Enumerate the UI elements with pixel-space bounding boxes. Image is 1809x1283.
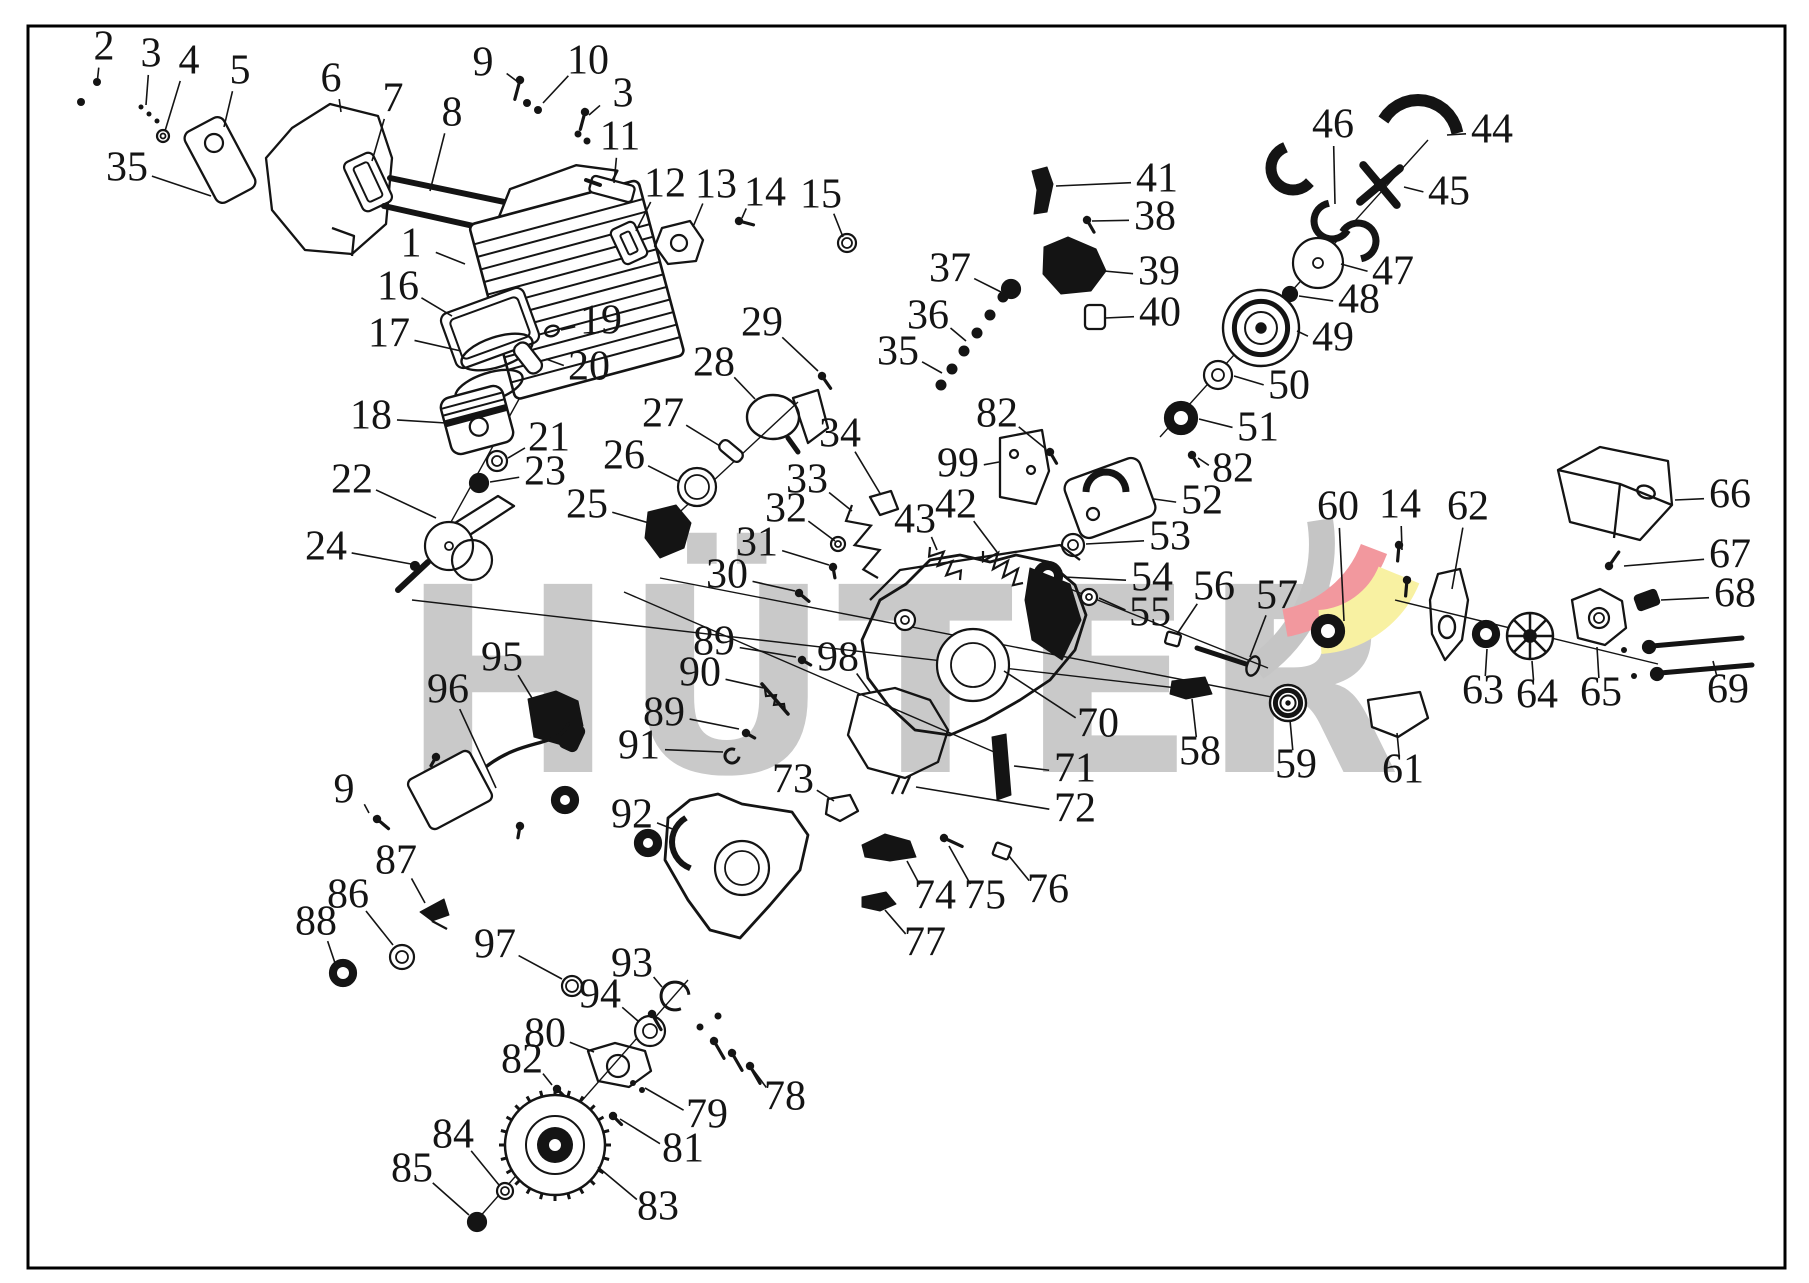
leader-line: [421, 298, 452, 316]
leader-line: [433, 1183, 469, 1215]
callout-87: 87: [375, 838, 425, 903]
part-number-label: 49: [1312, 315, 1354, 361]
callout-99: 99: [937, 441, 999, 487]
drum-glyph: [1270, 685, 1306, 721]
part-number-label: 83: [637, 1184, 679, 1230]
leader-line: [620, 1119, 660, 1144]
part-number-label: 46: [1312, 102, 1354, 148]
outline-glyph: [1558, 470, 1672, 505]
leader-line: [372, 119, 384, 161]
callout-50: 50: [1234, 363, 1310, 409]
part-number-label: 96: [427, 667, 469, 713]
part-number-label: 28: [693, 340, 735, 386]
part-number-label: 27: [642, 391, 684, 437]
part-number-label: 75: [964, 873, 1006, 919]
screw-glyph: [607, 1110, 624, 1127]
callout-16: 16: [377, 264, 452, 316]
leader-line: [165, 81, 180, 131]
part-number-label: 51: [1237, 405, 1279, 451]
callout-46: 46: [1312, 102, 1354, 204]
part-number-label: 16: [377, 264, 419, 310]
part-number-label: 34: [819, 411, 861, 457]
solid-part-glyph: [1032, 167, 1053, 214]
part-number-label: 14: [1379, 482, 1421, 528]
leader-line: [1661, 598, 1709, 600]
callout-83: 83: [598, 1167, 679, 1230]
callout-28: 28: [693, 340, 755, 399]
callout-14: 14: [742, 170, 786, 218]
diagram-page: HÜTER 2345678910311351213141511617192018…: [0, 0, 1809, 1283]
part-number-label: 53: [1149, 514, 1191, 560]
part-number-label: 42: [935, 482, 977, 528]
ring-glyph: [1651, 668, 1663, 680]
ring-glyph: [1293, 238, 1343, 288]
part-number-label: 65: [1580, 670, 1622, 716]
leader-line: [1452, 528, 1463, 589]
callout-63: 63: [1462, 649, 1504, 714]
solid-part-glyph: [1043, 237, 1106, 294]
part-number-label: 25: [566, 482, 608, 528]
part-number-label: 30: [706, 552, 748, 598]
callout-1: 1: [401, 221, 466, 267]
leader-line: [1404, 187, 1423, 192]
c-clip-glyph: [661, 982, 689, 1010]
leader-line: [885, 910, 906, 934]
ring-glyph: [497, 1183, 513, 1199]
solid-part-glyph: [862, 892, 896, 911]
ring-glyph: [838, 234, 856, 252]
screw-glyph: [726, 1047, 745, 1072]
leader-line: [1334, 146, 1335, 204]
part-number-label: 22: [331, 457, 373, 503]
leader-line: [922, 362, 942, 373]
ring-glyph: [715, 841, 769, 895]
outline-glyph: [1000, 430, 1049, 504]
small-parts-glyph: [139, 105, 160, 124]
part-number-label: 14: [744, 170, 786, 216]
callout-82: 82: [976, 391, 1046, 449]
callout-81: 81: [620, 1119, 704, 1172]
part-number-label: 88: [295, 899, 337, 945]
screw-glyph: [708, 1035, 727, 1060]
part-number-label: 50: [1268, 363, 1310, 409]
leader-line: [1092, 220, 1129, 221]
ring-glyph: [425, 522, 473, 570]
leader-line: [598, 1167, 637, 1200]
screw-glyph: [1603, 550, 1622, 572]
part-number-label: 40: [1139, 290, 1181, 336]
screw-glyph: [816, 370, 834, 391]
ring-glyph: [671, 235, 687, 251]
arc-shoe-glyph: [1314, 203, 1348, 239]
part-number-label: 26: [603, 433, 645, 479]
small-parts-glyph: [697, 1013, 722, 1031]
callout-39: 39: [1104, 249, 1180, 295]
leader-line: [612, 512, 649, 523]
part-number-label: 8: [442, 90, 463, 136]
callout-78: 78: [751, 1067, 806, 1120]
ring-glyph: [1027, 466, 1035, 474]
part-number-label: 73: [772, 757, 814, 803]
screw-glyph: [371, 813, 391, 832]
ring-glyph: [1643, 641, 1655, 653]
piston-glyph: [439, 384, 516, 457]
callout-8: 8: [430, 90, 463, 191]
callout-25: 25: [566, 482, 649, 528]
part-number-label: 60: [1317, 484, 1359, 530]
ring-glyph: [895, 610, 915, 630]
part-number-label: 61: [1382, 747, 1424, 793]
part-number-label: 84: [432, 1112, 474, 1158]
callout-15: 15: [800, 172, 843, 237]
small-parts-glyph: [523, 99, 542, 114]
ring-glyph: [1062, 534, 1084, 556]
part-number-label: 63: [1462, 668, 1504, 714]
leader-line: [152, 176, 211, 196]
part-number-label: 44: [1471, 107, 1513, 153]
part-number-label: 37: [929, 246, 971, 292]
arc-shoe-glyph: [1342, 223, 1376, 259]
solid-part-glyph: [1170, 677, 1212, 699]
callout-9: 9: [473, 40, 519, 86]
callout-29: 29: [741, 300, 818, 371]
flywheel-glyph: [499, 1089, 611, 1201]
callout-84: 84: [432, 1112, 499, 1185]
leader-line: [508, 448, 525, 458]
part-number-label: 18: [350, 393, 392, 439]
callout-38: 38: [1092, 194, 1176, 240]
leader-line: [146, 75, 148, 105]
box-glyph: [717, 438, 745, 464]
box-glyph: [182, 114, 258, 205]
arc-shoe-glyph: [1271, 147, 1310, 190]
leader-line: [1299, 296, 1333, 301]
part-number-label: 77: [904, 920, 946, 966]
part-number-label: 45: [1428, 169, 1470, 215]
part-number-label: 13: [695, 162, 737, 208]
callout-2: 2: [94, 24, 115, 84]
callout-24: 24: [305, 524, 411, 570]
callout-13: 13: [693, 162, 737, 227]
leader-line: [366, 911, 393, 945]
callout-49: 49: [1297, 315, 1354, 361]
leader-line: [224, 91, 232, 127]
callout-74: 74: [907, 861, 956, 919]
part-number-label: 76: [1027, 867, 1069, 913]
part-number-label: 87: [375, 838, 417, 884]
leader-line: [782, 337, 818, 371]
part-number-label: 10: [567, 38, 609, 84]
impeller-glyph: [1507, 613, 1553, 659]
ring-glyph: [1473, 621, 1499, 647]
part-number-label: 3: [141, 31, 162, 77]
leader-line: [1341, 264, 1368, 271]
rod-glyph: [788, 438, 798, 452]
part-number-label: 35: [106, 145, 148, 191]
callout-10: 10: [543, 38, 609, 103]
ellipse-ring-glyph: [1439, 616, 1455, 638]
ring-glyph: [411, 562, 419, 570]
ring-glyph: [1081, 589, 1097, 605]
leader-line: [1199, 419, 1233, 427]
part-number-label: 82: [976, 391, 1018, 437]
part-number-label: 3: [613, 71, 634, 117]
part-number-label: 17: [368, 311, 410, 357]
part-number-label: 4: [179, 38, 200, 84]
outline-glyph: [655, 221, 703, 264]
part-number-label: 57: [1256, 573, 1298, 619]
callout-45: 45: [1404, 169, 1470, 215]
part-number-label: 39: [1138, 249, 1180, 295]
leader-line: [1675, 499, 1704, 500]
ring-glyph: [390, 945, 414, 969]
leader-line: [1104, 271, 1133, 274]
callout-34: 34: [819, 411, 881, 495]
part-number-label: 5: [230, 48, 251, 94]
leader-line: [543, 76, 568, 103]
leader-line: [436, 252, 465, 264]
part-number-label: 35: [877, 329, 919, 375]
part-number-label: 58: [1179, 729, 1221, 775]
screw-glyph: [576, 107, 590, 131]
part-number-label: 64: [1516, 672, 1558, 718]
part-number-label: 90: [679, 650, 721, 696]
leader-line: [397, 420, 446, 423]
ring-glyph: [468, 1213, 486, 1231]
leader-line: [1401, 526, 1402, 550]
callout-65: 65: [1580, 647, 1622, 716]
part-number-label: 43: [894, 497, 936, 543]
leader-line: [1447, 134, 1466, 135]
callout-4: 4: [165, 38, 200, 131]
part-number-label: 9: [334, 767, 355, 813]
part-number-label: 70: [1077, 701, 1119, 747]
leader-line: [984, 462, 999, 465]
part-number-label: 97: [474, 922, 516, 968]
callout-43: 43: [894, 497, 937, 550]
leader-line: [570, 1042, 594, 1052]
leader-line: [686, 425, 720, 446]
ring-glyph: [487, 451, 507, 471]
exploded-parts-diagram: HÜTER 2345678910311351213141511617192018…: [0, 0, 1809, 1283]
part-number-label: 9: [473, 40, 494, 86]
small-parts-glyph: [1621, 647, 1637, 679]
leader-line: [1234, 376, 1264, 385]
leader-line: [1154, 499, 1176, 502]
part-number-label: 68: [1714, 571, 1756, 617]
ring-glyph: [1002, 280, 1020, 298]
callout-27: 27: [642, 391, 720, 446]
part-number-label: 81: [662, 1126, 704, 1172]
callout-9: 9: [334, 767, 370, 813]
callout-88: 88: [295, 899, 337, 963]
part-number-label: 95: [481, 635, 523, 681]
leader-line: [519, 956, 562, 979]
screw-glyph: [744, 1060, 763, 1085]
box-glyph: [1634, 589, 1660, 611]
ring-glyph: [1312, 615, 1344, 647]
leader-line: [654, 977, 662, 987]
ring-glyph: [1589, 608, 1609, 628]
leader-line: [430, 133, 445, 191]
leader-line: [364, 804, 369, 813]
leader-line: [648, 466, 678, 481]
part-number-label: 62: [1447, 484, 1489, 530]
callout-76: 76: [1009, 856, 1069, 913]
callout-37: 37: [929, 246, 1001, 292]
part-number-label: 6: [321, 56, 342, 102]
callout-18: 18: [350, 393, 446, 439]
callout-22: 22: [331, 457, 436, 518]
callout-5: 5: [224, 48, 251, 127]
leader-line: [855, 452, 881, 495]
part-number-label: 69: [1707, 667, 1749, 713]
screw-glyph: [734, 216, 755, 229]
outline-glyph: [432, 921, 447, 929]
part-number-label: 29: [741, 300, 783, 346]
part-number-label: 20: [568, 344, 610, 390]
ring-glyph: [330, 960, 356, 986]
outline-glyph: [588, 1043, 651, 1087]
ring-glyph: [1165, 402, 1197, 434]
part-number-label: 2: [94, 24, 115, 70]
callout-51: 51: [1199, 405, 1279, 451]
part-number-label: 91: [618, 723, 660, 769]
screw-glyph: [938, 832, 963, 850]
leader-line: [543, 1074, 552, 1085]
part-number-label: 78: [764, 1074, 806, 1120]
part-number-label: 23: [524, 449, 566, 495]
leader-line: [645, 1088, 684, 1110]
callout-3: 3: [141, 31, 162, 105]
ellipse-ring-glyph: [1635, 483, 1656, 500]
leader-line: [589, 105, 600, 115]
callout-62: 62: [1447, 484, 1489, 589]
part-number-label: 66: [1709, 472, 1751, 518]
part-number-label: 74: [914, 873, 956, 919]
leader-line: [490, 477, 519, 482]
ring-glyph: [937, 629, 1009, 701]
part-number-label: 99: [937, 441, 979, 487]
callout-97: 97: [474, 922, 562, 979]
leader-line: [622, 1007, 638, 1021]
part-number-label: 92: [611, 792, 653, 838]
leader-line: [951, 328, 966, 341]
part-number-label: 38: [1134, 194, 1176, 240]
part-number-label: 85: [391, 1146, 433, 1192]
callout-69: 69: [1707, 661, 1749, 713]
leader-line: [471, 1151, 499, 1185]
leader-line: [974, 279, 1001, 292]
leader-line: [1105, 317, 1134, 318]
part-number-label: 82: [501, 1037, 543, 1083]
leader-line: [829, 493, 852, 511]
part-number-label: 56: [1193, 564, 1235, 610]
part-number-label: 55: [1129, 590, 1171, 636]
leader-line: [376, 490, 436, 518]
ring-glyph: [552, 787, 578, 813]
box-glyph: [992, 842, 1011, 860]
part-number-label: 7: [383, 76, 404, 122]
outline-glyph: [1430, 569, 1468, 660]
drum-glyph: [1223, 290, 1299, 366]
ring-glyph: [1204, 361, 1232, 389]
arc-shoe-glyph: [1383, 100, 1457, 133]
box-glyph: [1085, 305, 1105, 329]
screw-glyph: [1081, 214, 1097, 234]
leader-line: [507, 73, 518, 82]
callout-64: 64: [1516, 661, 1558, 718]
leader-line: [1624, 559, 1704, 566]
ring-glyph: [470, 474, 488, 492]
leader-line: [1056, 183, 1131, 186]
part-number-label: 94: [579, 972, 621, 1018]
ring-glyph: [678, 468, 716, 506]
callout-26: 26: [603, 433, 678, 481]
part-number-label: 12: [644, 161, 686, 207]
part-number-label: 24: [305, 524, 347, 570]
callout-40: 40: [1105, 290, 1181, 336]
part-number-label: 59: [1275, 742, 1317, 788]
part-number-label: 11: [600, 114, 640, 160]
leader-line: [1198, 458, 1209, 465]
part-number-label: 19: [580, 298, 622, 344]
rod-glyph: [1652, 638, 1742, 646]
ring-glyph: [607, 1055, 629, 1077]
callout-66: 66: [1675, 472, 1751, 518]
part-number-label: 15: [800, 172, 842, 218]
ring-glyph: [157, 130, 169, 142]
solid-part-glyph: [862, 834, 916, 861]
part-number-label: 98: [817, 635, 859, 681]
ellipse-ring-glyph: [747, 395, 799, 439]
part-number-label: 72: [1054, 786, 1096, 832]
leader-line: [734, 377, 755, 399]
outline-glyph: [1614, 484, 1620, 538]
box-glyph: [1062, 455, 1158, 541]
part-number-label: 1: [401, 221, 422, 267]
ring-glyph: [1010, 450, 1018, 458]
clutch-spider-glyph: [1360, 165, 1400, 205]
small-parts-glyph: [575, 131, 591, 145]
